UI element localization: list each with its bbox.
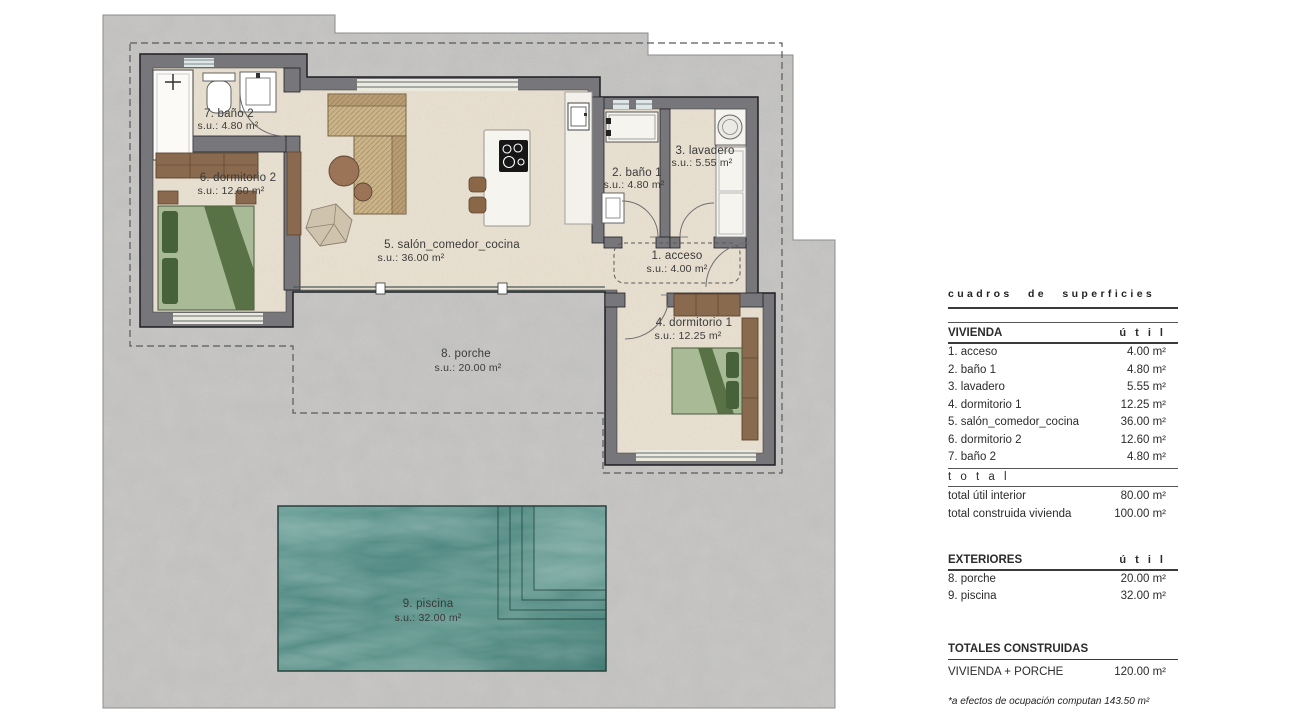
- table-row: 4. dormitorio 1 12.25 m²: [948, 397, 1178, 415]
- window-salon-north: [357, 79, 518, 91]
- faucet-icon: [584, 113, 587, 116]
- label-dormitorio1-area: s.u.: 12.25 m²: [655, 330, 722, 342]
- row-value: 4.00 m²: [1127, 344, 1178, 362]
- row-value: 4.80 m²: [1127, 449, 1178, 467]
- pouf-small: [354, 183, 372, 201]
- label-porche: 8. porche: [441, 348, 491, 360]
- label-bano1-area: s.u.: 4.80 m²: [604, 179, 665, 191]
- pillow: [162, 211, 178, 253]
- label-piscina: 9. piscina: [403, 598, 454, 610]
- label-piscina-area: s.u.: 32.00 m²: [395, 612, 462, 624]
- bathtub: [606, 112, 658, 142]
- surfaces-panel: cuadros de superficies VIVIENDA ú t i l …: [948, 288, 1178, 707]
- total-row: VIVIENDA + PORCHE 120.00 m²: [948, 663, 1178, 681]
- label-bano1: 2. baño 1: [612, 167, 662, 179]
- cooktop: [499, 140, 528, 172]
- label-acceso: 1. acceso: [651, 250, 702, 262]
- label-salon-area: s.u.: 36.00 m²: [378, 252, 445, 264]
- row-value: 12.25 m²: [1121, 397, 1178, 415]
- table-row: 6. dormitorio 2 12.60 m²: [948, 432, 1178, 450]
- totales-section: TOTALES CONSTRUIDAS VIVIENDA + PORCHE 12…: [948, 643, 1178, 681]
- row-value: 20.00 m²: [1121, 571, 1178, 589]
- label-dormitorio2-area: s.u.: 12.60 m²: [198, 185, 265, 197]
- table-row: 3. lavadero 5.55 m²: [948, 379, 1178, 397]
- label-dormitorio2: 6. dormitorio 2: [200, 172, 277, 184]
- label-salon: 5. salón_comedor_cocina: [384, 239, 520, 251]
- panel-title: cuadros de superficies: [948, 288, 1178, 309]
- row-label: 4. dormitorio 1: [948, 397, 1022, 415]
- wardrobe: [674, 294, 740, 316]
- row-value: 36.00 m²: [1121, 414, 1178, 432]
- label-lavadero: 3. lavadero: [675, 145, 734, 157]
- row-label: 5. salón_comedor_cocina: [948, 414, 1079, 432]
- pillow: [162, 258, 178, 304]
- row-label: total construida vivienda: [948, 505, 1071, 523]
- row-label: 7. baño 2: [948, 449, 996, 467]
- wall-bano2-salon-top: [284, 68, 300, 92]
- total-row: total construida vivienda 100.00 m²: [948, 505, 1178, 523]
- occupancy-footnote: *a efectos de ocupación computan 143.50 …: [948, 696, 1178, 707]
- nightstand: [158, 191, 178, 204]
- toilet-tank: [203, 73, 235, 81]
- label-bano2: 7. baño 2: [204, 108, 254, 120]
- wardrobe-side: [742, 318, 758, 440]
- label-bano2-area: s.u.: 4.80 m²: [198, 120, 259, 132]
- row-label: total útil interior: [948, 487, 1026, 505]
- table-row: 5. salón_comedor_cocina 36.00 m²: [948, 414, 1178, 432]
- table-row: 1. acceso 4.00 m²: [948, 344, 1178, 362]
- tub-faucet-icon: [606, 118, 611, 124]
- exteriores-header: EXTERIORES: [948, 554, 1022, 566]
- row-value: 120.00 m²: [1114, 663, 1178, 681]
- row-value: 32.00 m²: [1121, 588, 1178, 606]
- toilet: [602, 193, 624, 223]
- vivienda-header: VIVIENDA: [948, 327, 1002, 339]
- subtotal-row: t o t a l: [948, 468, 1178, 487]
- window-dorm2-south: [173, 313, 263, 324]
- laundry-fixtures: [715, 109, 746, 237]
- label-lavadero-area: s.u.: 5.55 m²: [672, 157, 733, 169]
- label-porche-area: s.u.: 20.00 m²: [435, 362, 502, 374]
- window-bano2-north: [184, 58, 214, 67]
- pool: [278, 506, 606, 671]
- wall-bano1-acceso-l: [604, 237, 622, 248]
- total-row: total útil interior 80.00 m²: [948, 487, 1178, 505]
- row-value: 5.55 m²: [1127, 379, 1178, 397]
- kitchen-counter: [565, 92, 592, 224]
- label-acceso-area: s.u.: 4.00 m²: [647, 263, 708, 275]
- table-row: 2. baño 1 4.80 m²: [948, 362, 1178, 380]
- label-dormitorio1: 4. dormitorio 1: [656, 317, 733, 329]
- vivienda-header-row: VIVIENDA ú t i l: [948, 323, 1178, 344]
- util-header: ú t i l: [1119, 554, 1178, 566]
- table-row: 7. baño 2 4.80 m²: [948, 449, 1178, 467]
- table-row: 8. porche 20.00 m²: [948, 571, 1178, 589]
- pillow: [726, 381, 739, 409]
- kitchen-island: [484, 130, 530, 226]
- row-label: 1. acceso: [948, 344, 997, 362]
- table-row: 9. piscina 32.00 m²: [948, 588, 1178, 606]
- row-value: 80.00 m²: [1121, 487, 1178, 505]
- page: 1. acceso s.u.: 4.00 m² 2. baño 1 s.u.: …: [0, 0, 1290, 727]
- exteriores-section: EXTERIORES ú t i l 8. porche 20.00 m² 9.…: [948, 550, 1178, 606]
- util-header: ú t i l: [1119, 327, 1178, 339]
- row-label: VIVIENDA + PORCHE: [948, 663, 1063, 681]
- wall-dorm1-north-l: [605, 293, 625, 307]
- stool: [469, 197, 486, 213]
- row-label: 2. baño 1: [948, 362, 996, 380]
- tall-cabinet: [287, 152, 301, 235]
- row-value: 4.80 m²: [1127, 362, 1178, 380]
- row-value: 12.60 m²: [1121, 432, 1178, 450]
- stool: [469, 177, 486, 192]
- wall-bano2-dorm2: [191, 136, 286, 152]
- pouf-large: [329, 156, 359, 186]
- row-value: 100.00 m²: [1114, 505, 1178, 523]
- row-label: 3. lavadero: [948, 379, 1005, 397]
- exteriores-header-row: EXTERIORES ú t i l: [948, 550, 1178, 571]
- vivienda-section: VIVIENDA ú t i l 1. acceso 4.00 m² 2. ba…: [948, 322, 1178, 523]
- row-label: 6. dormitorio 2: [948, 432, 1022, 450]
- row-label: 9. piscina: [948, 588, 997, 606]
- window-dorm1-south: [636, 450, 756, 461]
- totales-header: TOTALES CONSTRUIDAS: [948, 643, 1178, 660]
- pillow: [726, 352, 739, 378]
- sink-faucet-icon: [256, 73, 260, 78]
- row-label: 8. porche: [948, 571, 996, 589]
